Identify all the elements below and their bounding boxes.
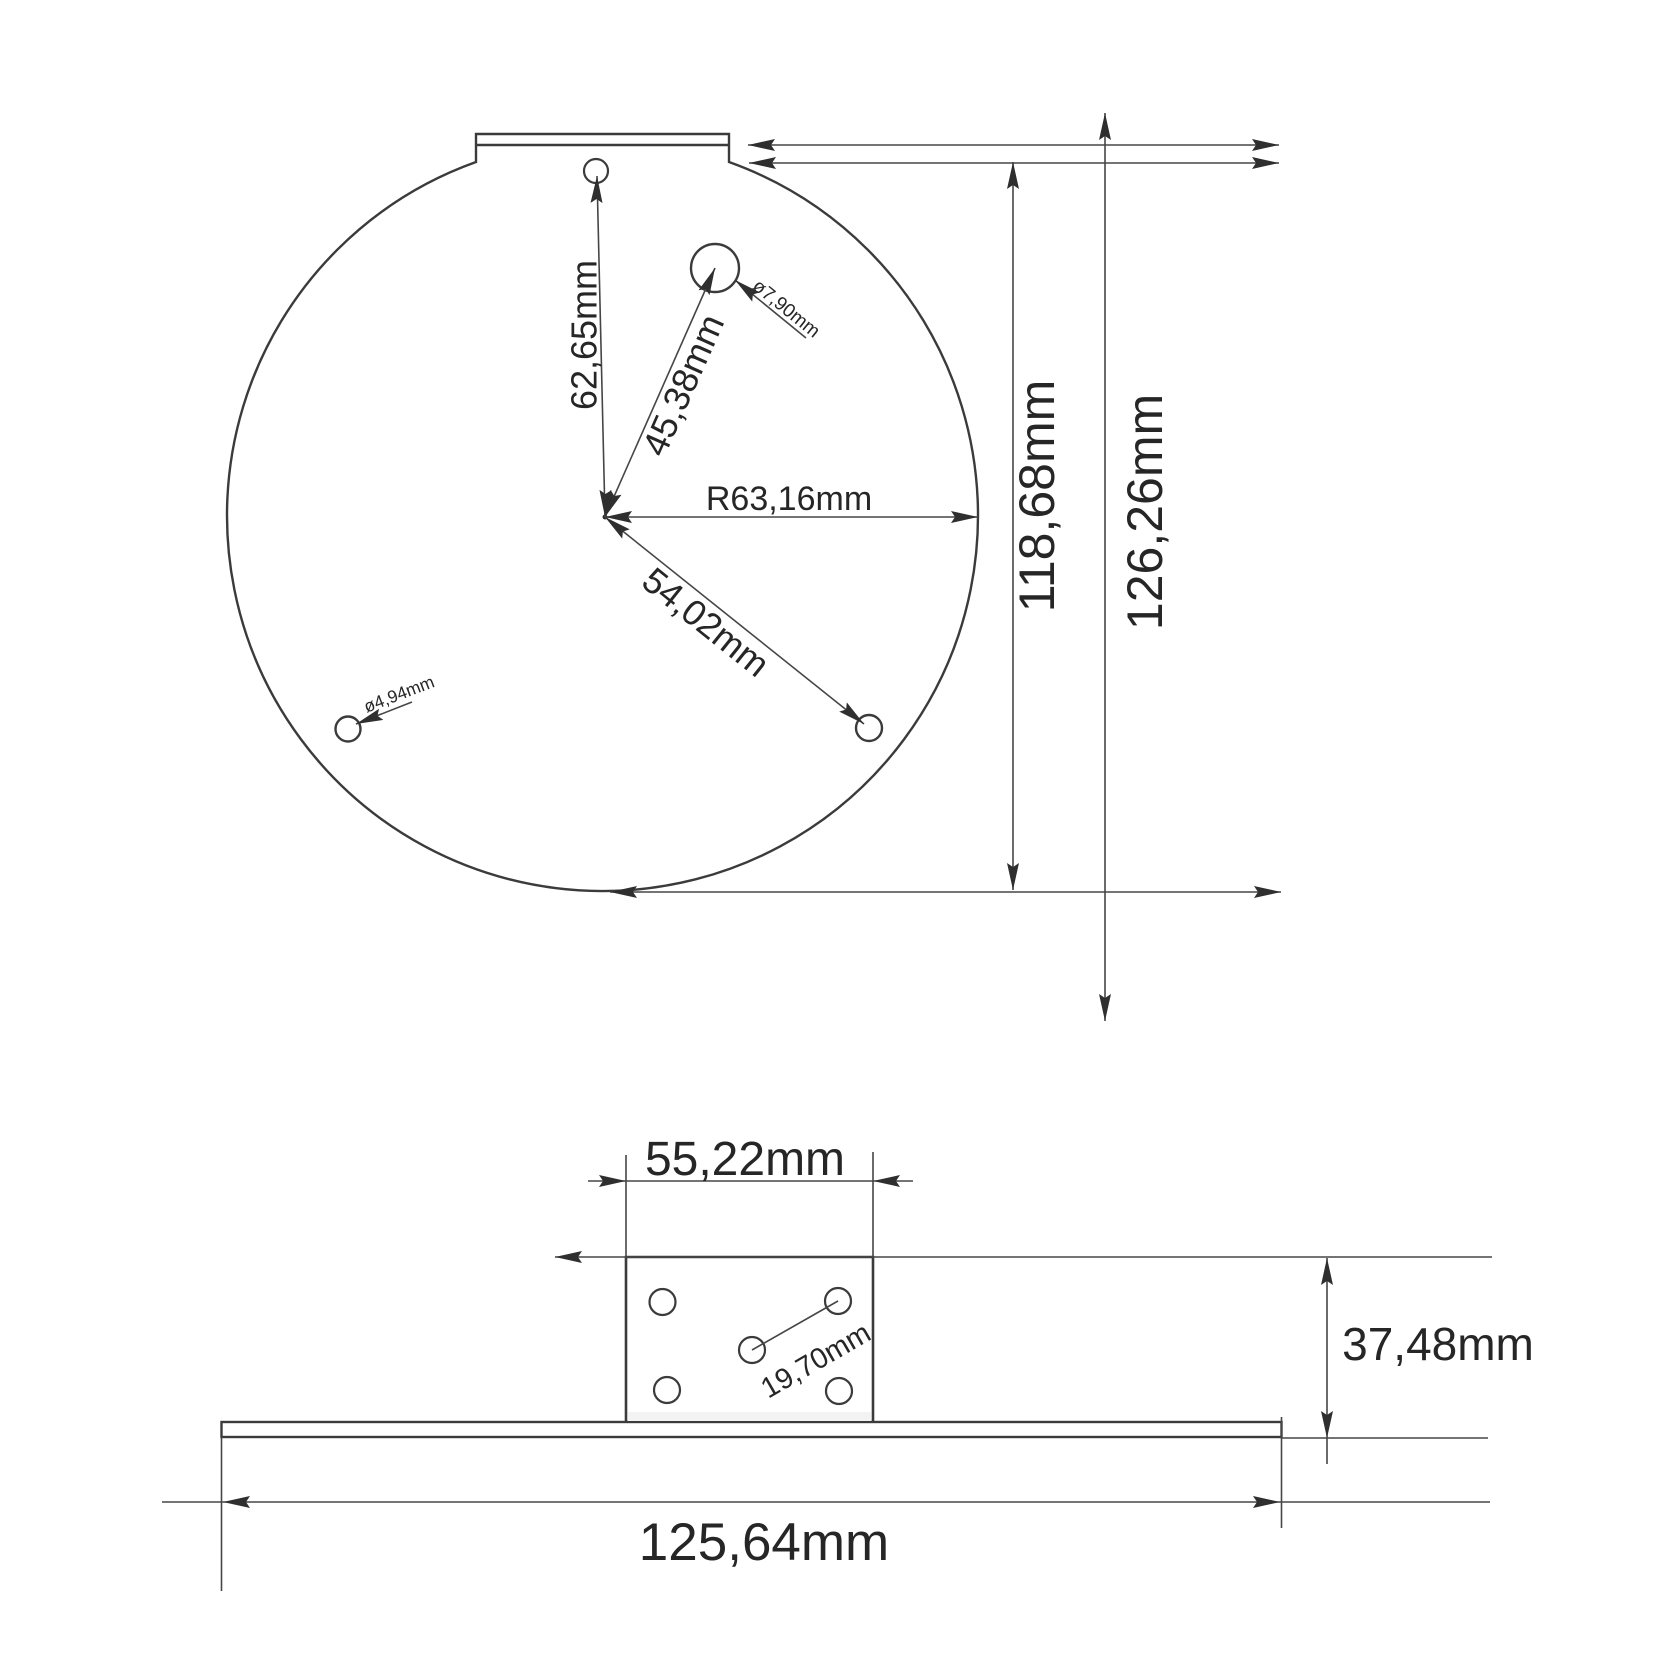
svg-text:19,70mm: 19,70mm bbox=[756, 1317, 877, 1405]
svg-text:45,38mm: 45,38mm bbox=[634, 308, 732, 462]
svg-text:R63,16mm: R63,16mm bbox=[706, 480, 872, 518]
svg-text:125,64mm: 125,64mm bbox=[639, 1513, 889, 1572]
svg-text:126,26mm: 126,26mm bbox=[1117, 394, 1173, 630]
svg-text:ø7,90mm: ø7,90mm bbox=[748, 276, 824, 343]
svg-text:62,65mm: 62,65mm bbox=[564, 260, 605, 410]
svg-text:55,22mm: 55,22mm bbox=[645, 1133, 845, 1186]
svg-text:118,68mm: 118,68mm bbox=[1009, 380, 1065, 613]
svg-text:37,48mm: 37,48mm bbox=[1342, 1318, 1534, 1370]
svg-text:54,02mm: 54,02mm bbox=[635, 559, 778, 685]
svg-text:ø4,94mm: ø4,94mm bbox=[361, 671, 437, 716]
